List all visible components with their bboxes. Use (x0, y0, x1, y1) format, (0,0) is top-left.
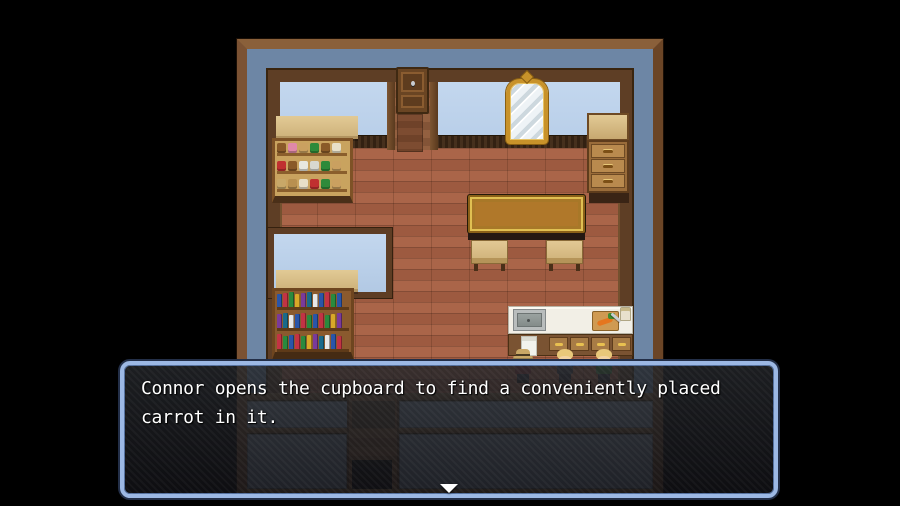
toy-item (332, 161, 341, 171)
toy-item (332, 179, 341, 189)
book-spine (325, 335, 330, 349)
letterbox-bottom (0, 497, 900, 506)
toy-item (310, 161, 319, 171)
toy-item (299, 161, 308, 171)
stool (471, 240, 508, 264)
toy-item (321, 161, 330, 171)
book-spine (301, 293, 306, 307)
wall-post (387, 82, 395, 150)
book-spine (313, 314, 318, 328)
toy-item (310, 143, 319, 153)
bookshelf-row (277, 333, 349, 352)
hat-icon (516, 349, 530, 356)
book-spine (313, 334, 318, 349)
message-line-1: Connor opens the cupboard to find a conv… (141, 374, 761, 403)
book-spine (295, 294, 300, 307)
book-spine (331, 334, 336, 349)
toy-item (288, 143, 297, 153)
toy-item (321, 179, 330, 189)
book-spine (313, 294, 318, 307)
toy-item (332, 143, 341, 153)
toy-nook-counter (276, 116, 358, 139)
toy-item (277, 161, 286, 171)
book-spine (283, 293, 288, 307)
book-spine (295, 334, 300, 349)
dresser-drawer (591, 174, 625, 188)
stool-leg (576, 264, 580, 271)
toy-shelf-row (277, 178, 347, 192)
book-spine (307, 292, 312, 307)
toy-item (310, 179, 319, 189)
cupboard-handle-icon (411, 81, 415, 86)
cutting-board (592, 311, 619, 331)
stool-leg (549, 264, 553, 271)
stool-leg (474, 264, 478, 271)
toy-item (277, 143, 286, 153)
toy-shelf-items (275, 141, 350, 196)
bookshelf-row (277, 291, 349, 310)
book-spine (277, 294, 282, 307)
book-spine (277, 334, 282, 349)
book-spine (325, 315, 330, 328)
bookshelf-row (277, 312, 349, 331)
dresser (587, 140, 629, 193)
book-spine (289, 292, 294, 307)
stool (546, 240, 583, 264)
wall-post (430, 82, 438, 150)
sink (513, 309, 546, 331)
game-viewport[interactable]: Connor opens the cupboard to find a conv… (0, 0, 900, 506)
toy-item (299, 179, 308, 189)
message-window[interactable]: Connor opens the cupboard to find a conv… (120, 361, 778, 498)
table-shadow (468, 233, 585, 240)
dresser-shadow (589, 193, 629, 203)
toy-item (288, 179, 297, 189)
book-spine (301, 336, 306, 349)
wall-cupboard[interactable] (396, 67, 429, 114)
sink-drain-icon (527, 319, 530, 322)
toy-item (288, 161, 297, 171)
book-spine (319, 293, 324, 307)
toy-shelf-row (277, 160, 347, 174)
toy-item (277, 179, 286, 189)
book-spine (319, 336, 324, 349)
long-table (468, 195, 585, 233)
book-spine (295, 314, 300, 328)
book-spine (337, 336, 342, 349)
book-spine (337, 313, 342, 328)
dresser-drawer (591, 159, 625, 173)
toy-shelf-row (277, 142, 347, 156)
bookshelf (272, 288, 354, 360)
jar (620, 307, 631, 321)
toy-shelf (272, 138, 353, 203)
dresser-top (587, 113, 629, 141)
book-spine (289, 315, 294, 328)
book-spine (319, 313, 324, 328)
dresser-drawer (591, 144, 625, 158)
book-spine (325, 292, 330, 307)
toy-item (299, 143, 308, 153)
book-spine (283, 336, 288, 349)
message-line-2: carrot in it. (141, 403, 761, 432)
book-spine (331, 314, 336, 328)
mirror (506, 79, 548, 144)
book-spine (289, 335, 294, 349)
book-spine (307, 335, 312, 349)
toy-item (321, 143, 330, 153)
wall-column-base (397, 114, 423, 152)
book-spine (331, 294, 336, 307)
book-spine (337, 293, 342, 307)
continue-indicator-icon[interactable] (440, 484, 458, 493)
book-spine (307, 315, 312, 328)
book-spine (301, 313, 306, 328)
book-spine (283, 313, 288, 328)
book-spine (277, 314, 282, 328)
cupboard-door-bottom (401, 95, 424, 108)
stool-leg (501, 264, 505, 271)
